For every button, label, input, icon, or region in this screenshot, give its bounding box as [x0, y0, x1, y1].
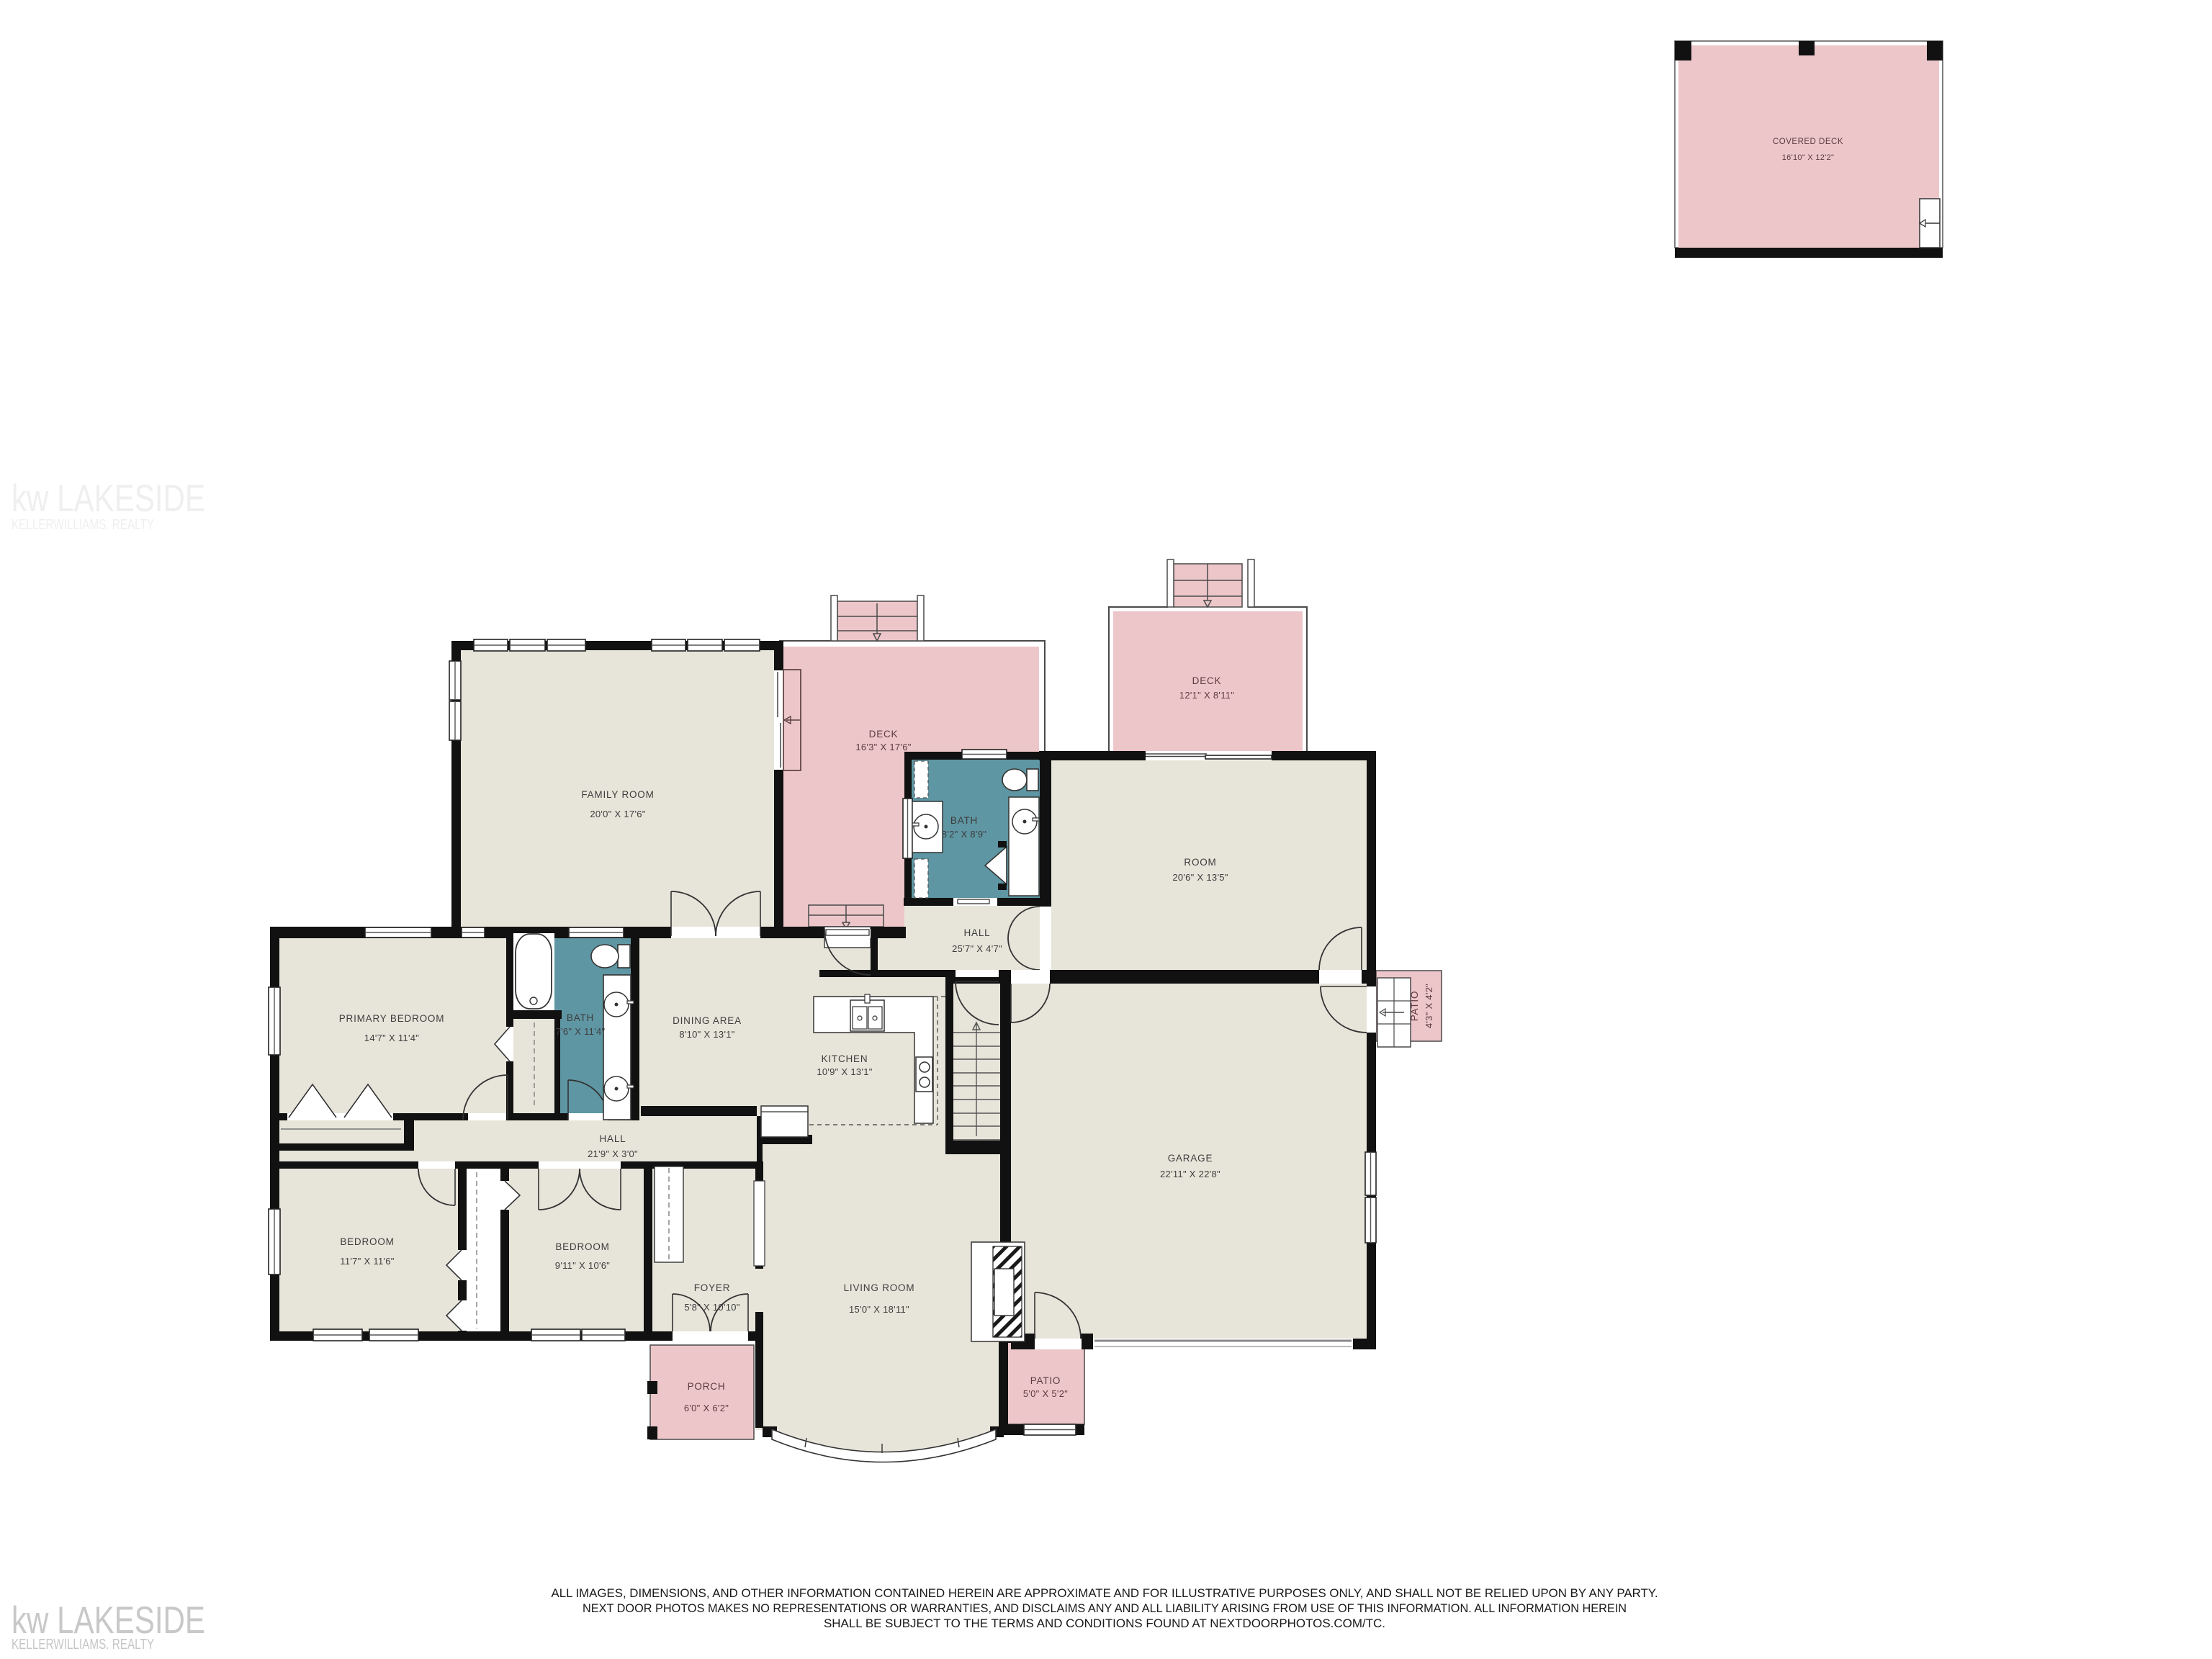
svg-text:6'0" X 6'2": 6'0" X 6'2": [684, 1403, 729, 1413]
svg-text:KELLERWILLIAMS. REALTY: KELLERWILLIAMS. REALTY: [12, 1637, 154, 1653]
svg-text:4'3" X 4'2": 4'3" X 4'2": [1424, 984, 1434, 1028]
svg-text:HALL: HALL: [964, 927, 991, 938]
svg-text:5'8" X 10'10": 5'8" X 10'10": [684, 1302, 739, 1313]
svg-text:BATH: BATH: [567, 1012, 594, 1023]
svg-text:GARAGE: GARAGE: [1168, 1153, 1213, 1164]
svg-text:KITCHEN: KITCHEN: [822, 1053, 868, 1064]
svg-text:7'6" X 11'4": 7'6" X 11'4": [556, 1026, 606, 1037]
svg-text:kw LAKESIDE: kw LAKESIDE: [12, 477, 205, 520]
svg-text:10'9" X 13'1": 10'9" X 13'1": [817, 1066, 872, 1077]
svg-text:20'6" X 13'5": 20'6" X 13'5": [1172, 872, 1228, 883]
svg-text:BEDROOM: BEDROOM: [555, 1241, 609, 1252]
svg-text:DECK: DECK: [1192, 675, 1222, 686]
svg-text:LIVING ROOM: LIVING ROOM: [844, 1282, 915, 1293]
svg-text:25'7" X 4'7": 25'7" X 4'7": [952, 943, 1002, 954]
svg-text:9'11" X 10'6": 9'11" X 10'6": [555, 1260, 610, 1271]
svg-text:5'0" X 5'2": 5'0" X 5'2": [1023, 1388, 1068, 1399]
svg-text:16'10" X 12'2": 16'10" X 12'2": [1782, 153, 1834, 162]
svg-text:NEXT DOOR PHOTOS MAKES NO REPR: NEXT DOOR PHOTOS MAKES NO REPRESENTATION…: [583, 1602, 1627, 1615]
svg-text:FOYER: FOYER: [694, 1282, 731, 1293]
svg-text:8'10" X 13'1": 8'10" X 13'1": [679, 1029, 734, 1040]
svg-text:8'2" X 8'9": 8'2" X 8'9": [942, 829, 986, 840]
svg-text:PATIO: PATIO: [1030, 1375, 1061, 1386]
svg-text:KELLERWILLIAMS. REALTY: KELLERWILLIAMS. REALTY: [12, 517, 154, 533]
svg-text:PATIO: PATIO: [1409, 991, 1420, 1022]
svg-text:16'3" X 17'6": 16'3" X 17'6": [855, 742, 911, 752]
svg-text:BEDROOM: BEDROOM: [340, 1236, 394, 1247]
svg-text:20'0" X 17'6": 20'0" X 17'6": [590, 809, 645, 819]
svg-text:ALL IMAGES, DIMENSIONS, AND OT: ALL IMAGES, DIMENSIONS, AND OTHER INFORM…: [552, 1587, 1658, 1600]
svg-text:DECK: DECK: [869, 729, 899, 739]
svg-text:PRIMARY BEDROOM: PRIMARY BEDROOM: [339, 1013, 445, 1024]
svg-text:FAMILY ROOM: FAMILY ROOM: [581, 789, 654, 800]
svg-text:11'7" X 11'6": 11'7" X 11'6": [340, 1256, 395, 1267]
svg-text:BATH: BATH: [950, 815, 978, 826]
svg-text:kw LAKESIDE: kw LAKESIDE: [12, 1599, 205, 1642]
svg-text:HALL: HALL: [600, 1133, 626, 1144]
svg-text:COVERED DECK: COVERED DECK: [1773, 138, 1843, 146]
svg-text:PORCH: PORCH: [688, 1381, 726, 1392]
svg-text:14'7" X 11'4": 14'7" X 11'4": [364, 1033, 419, 1043]
svg-text:DINING AREA: DINING AREA: [673, 1015, 742, 1026]
svg-text:22'11" X 22'8": 22'11" X 22'8": [1160, 1169, 1220, 1179]
svg-text:SHALL BE SUBJECT TO THE TERMS: SHALL BE SUBJECT TO THE TERMS AND CONDIT…: [824, 1617, 1385, 1630]
svg-text:12'1" X 8'11": 12'1" X 8'11": [1179, 690, 1234, 701]
svg-text:ROOM: ROOM: [1184, 857, 1216, 868]
svg-text:21'9" X 3'0": 21'9" X 3'0": [588, 1148, 638, 1159]
svg-text:15'0" X 18'11": 15'0" X 18'11": [849, 1304, 909, 1315]
